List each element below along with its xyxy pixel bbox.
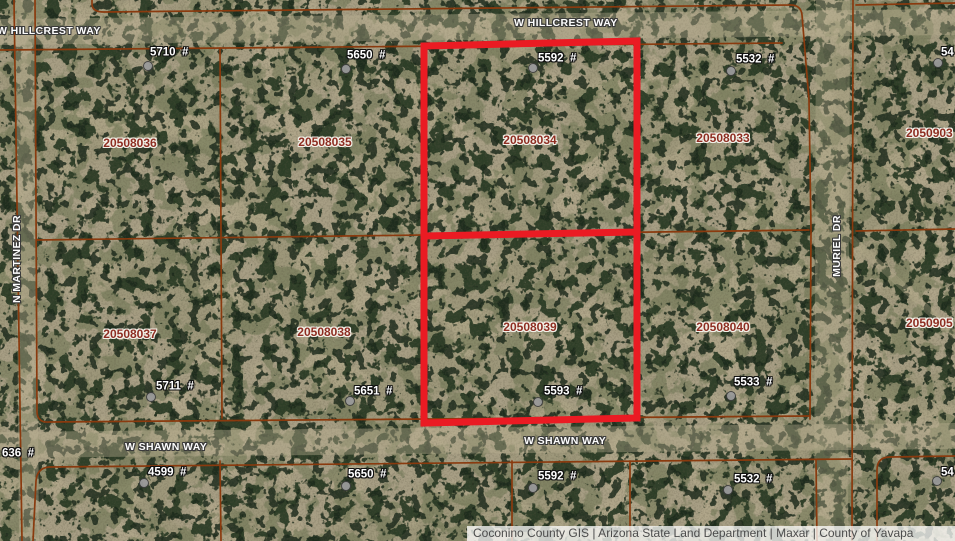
address-point-marker bbox=[726, 66, 736, 76]
address-label: 5650 # bbox=[348, 469, 386, 481]
parcel-label: 20508040 bbox=[696, 321, 749, 333]
parcel-label: 20508033 bbox=[696, 132, 749, 144]
satellite-imagery bbox=[0, 0, 955, 541]
address-point-marker bbox=[341, 481, 351, 491]
address-label: 5593 # bbox=[544, 386, 582, 398]
parcel-label: 20508038 bbox=[297, 326, 350, 338]
street-label-shawn-left: W SHAWN WAY bbox=[125, 442, 207, 453]
address-point-marker bbox=[528, 63, 538, 73]
address-label: 54 bbox=[941, 47, 954, 59]
address-label: 5532 # bbox=[734, 474, 772, 486]
address-label: 54 bbox=[941, 467, 954, 479]
parcel-label: 2050905 bbox=[906, 317, 953, 329]
address-point-marker bbox=[143, 61, 153, 71]
address-point-marker bbox=[528, 483, 538, 493]
parcel-label: 20508035 bbox=[298, 136, 351, 148]
address-label: 5651 # bbox=[354, 386, 392, 398]
parcel-label: 20508034 bbox=[503, 134, 556, 146]
address-label: 4599 # bbox=[148, 467, 186, 479]
parcel-label: 20508036 bbox=[103, 137, 156, 149]
address-label: 5592 # bbox=[538, 53, 576, 65]
street-label-shawn-center: W SHAWN WAY bbox=[524, 436, 606, 447]
address-point-marker bbox=[345, 396, 355, 406]
address-point-marker bbox=[533, 397, 543, 407]
map-canvas[interactable]: W HILLCREST WAY W HILLCREST WAY N MARTIN… bbox=[0, 0, 955, 541]
address-point-marker bbox=[933, 58, 943, 68]
address-label: 636 # bbox=[2, 448, 34, 460]
address-label: 5710 # bbox=[150, 47, 188, 59]
street-label-hillcrest-left: W HILLCREST WAY bbox=[0, 26, 101, 37]
address-label: 5533 # bbox=[734, 377, 772, 389]
address-label: 5650 # bbox=[347, 50, 385, 62]
parcel-label: 2050903 bbox=[906, 127, 953, 139]
street-label-hillcrest-center: W HILLCREST WAY bbox=[514, 18, 618, 29]
address-point-marker bbox=[341, 64, 351, 74]
attribution-bar: Coconino County GIS | Arizona State Land… bbox=[467, 526, 955, 541]
parcel-label: 20508037 bbox=[103, 328, 156, 340]
address-point-marker bbox=[726, 391, 736, 401]
address-label: 5711 # bbox=[156, 381, 194, 393]
address-point-marker bbox=[146, 392, 156, 402]
street-label-muriel: MURIEL DR bbox=[832, 215, 843, 277]
address-label: 5532 # bbox=[736, 54, 774, 66]
address-label: 5592 # bbox=[538, 471, 576, 483]
address-point-marker bbox=[932, 476, 942, 486]
address-point-marker bbox=[139, 478, 149, 488]
parcel-label: 20508039 bbox=[503, 321, 556, 333]
address-point-marker bbox=[723, 485, 733, 495]
street-label-martinez: N MARTINEZ DR bbox=[12, 215, 23, 303]
